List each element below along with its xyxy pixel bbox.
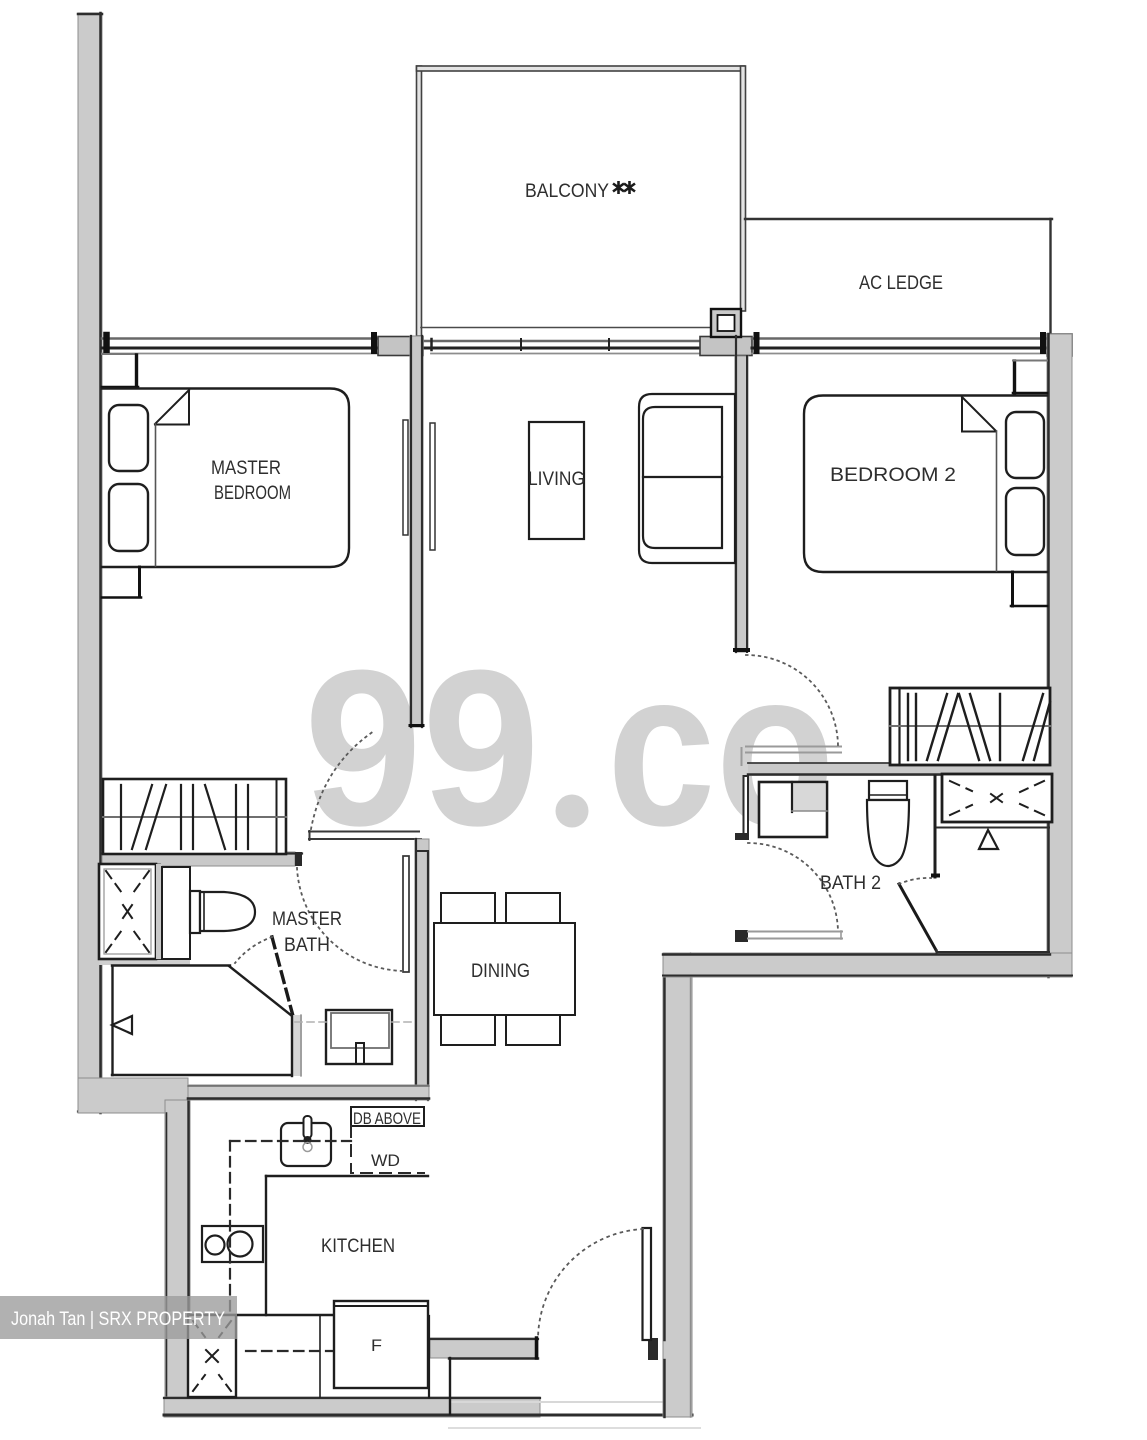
svg-text:MASTER: MASTER — [272, 908, 342, 930]
svg-text:WD: WD — [371, 1151, 400, 1170]
svg-text:F: F — [371, 1336, 382, 1355]
svg-text:DB ABOVE: DB ABOVE — [353, 1109, 421, 1128]
svg-text:BALCONY: BALCONY — [525, 180, 609, 202]
svg-text:MASTER: MASTER — [211, 457, 281, 479]
svg-text:Jonah Tan | SRX PROPERTY: Jonah Tan | SRX PROPERTY — [11, 1309, 225, 1330]
svg-text:BATH 2: BATH 2 — [820, 872, 881, 894]
svg-text:AC LEDGE: AC LEDGE — [859, 272, 943, 294]
svg-text:BATH: BATH — [284, 934, 330, 956]
svg-text:KITCHEN: KITCHEN — [321, 1235, 395, 1257]
svg-text:DINING: DINING — [471, 960, 530, 982]
svg-text:BEDROOM: BEDROOM — [214, 482, 291, 504]
svg-text:LIVING: LIVING — [528, 468, 585, 490]
svg-text:BEDROOM 2: BEDROOM 2 — [830, 464, 956, 486]
